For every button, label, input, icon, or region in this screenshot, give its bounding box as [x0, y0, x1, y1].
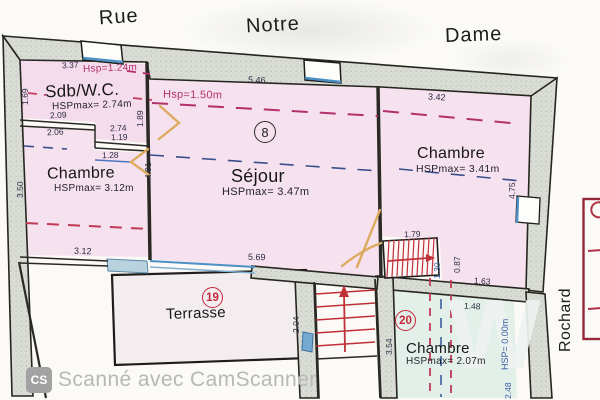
- dim-low-b: 1.48: [464, 301, 481, 312]
- floorplan-scan: W Rue Notre Dame Rochard Sdb/W.C. HSPmax…: [0, 0, 600, 400]
- lot-number-8: 8: [254, 121, 276, 143]
- dim-stair-v1: 1.30: [432, 262, 442, 279]
- dim-chr-right: 4.75: [507, 182, 517, 199]
- dim-stair-top: 1.79: [404, 229, 421, 240]
- room-sejour-name: Séjour: [231, 166, 285, 187]
- camscanner-watermark-text: Scanné avec CamScanner: [58, 368, 317, 392]
- dim-chr-top: 3.42: [428, 92, 446, 103]
- dim-chl-bottom: 3.12: [74, 246, 92, 257]
- dim-wall-a: 2.09: [50, 110, 67, 121]
- room-sejour-hspmax: HSPmax= 3.47m: [222, 186, 309, 198]
- dim-sdb-left: 1.69: [20, 88, 30, 105]
- dim-stair-v2: 0.87: [452, 256, 462, 273]
- room-chambre-left-hspmax: HSPmax= 3.12m: [54, 183, 134, 194]
- room-chambre-bottom-hspmax: HSPmax= 2.07m: [406, 356, 486, 367]
- street-dame: Dame: [445, 23, 503, 48]
- dim-pass-c: 1.28: [102, 150, 119, 161]
- lot-number-20: 20: [395, 310, 416, 331]
- room-chambre-bottom-name: Chambre: [406, 340, 470, 357]
- street-rue: Rue: [98, 5, 139, 31]
- dim-chb-left: 3.54: [384, 338, 394, 355]
- staircase-up: [316, 285, 375, 352]
- dim-wall-b: 2.06: [47, 127, 64, 138]
- lot-number-19: 19: [202, 287, 223, 308]
- dim-hsp-floor: HSP= 0.00m: [500, 319, 510, 370]
- dim-sejour-left-a: 1.89: [135, 110, 145, 127]
- camscanner-logo-icon: CS: [26, 367, 52, 393]
- plan-drawing: [0, 0, 600, 400]
- stair-up-arrow: [344, 292, 345, 352]
- room-sdb-hsp: Hsp=1.24m: [83, 62, 137, 75]
- dim-sdb-top: 3.37: [62, 60, 79, 71]
- margin-annotation-box: [584, 199, 600, 339]
- dim-chl-left: 3.50: [15, 181, 25, 198]
- room-chambre-right-name: Chambre: [417, 145, 485, 163]
- dim-sejour-top: 5.46: [248, 75, 266, 86]
- dim-low-a: 1.63: [474, 275, 491, 286]
- dim-sejour-bottom: 5.69: [248, 252, 266, 263]
- dim-terrasse-right: 2.04: [291, 316, 301, 333]
- street-notre: Notre: [245, 13, 300, 39]
- street-rochard: Rochard: [557, 288, 575, 352]
- dim-chb-right: 2.48: [503, 382, 513, 399]
- dim-pass-b: 1.19: [111, 132, 128, 143]
- room-sejour-hsp: Hsp=1.50m: [163, 88, 222, 101]
- room-chambre-right-hspmax: HSPmax= 3.41m: [416, 163, 500, 175]
- dim-sejour-left-b: 4.91: [143, 162, 153, 179]
- window-sill-icon: [517, 197, 518, 223]
- room-chambre-left-name: Chambre: [47, 164, 115, 183]
- staircase-right: [383, 238, 439, 278]
